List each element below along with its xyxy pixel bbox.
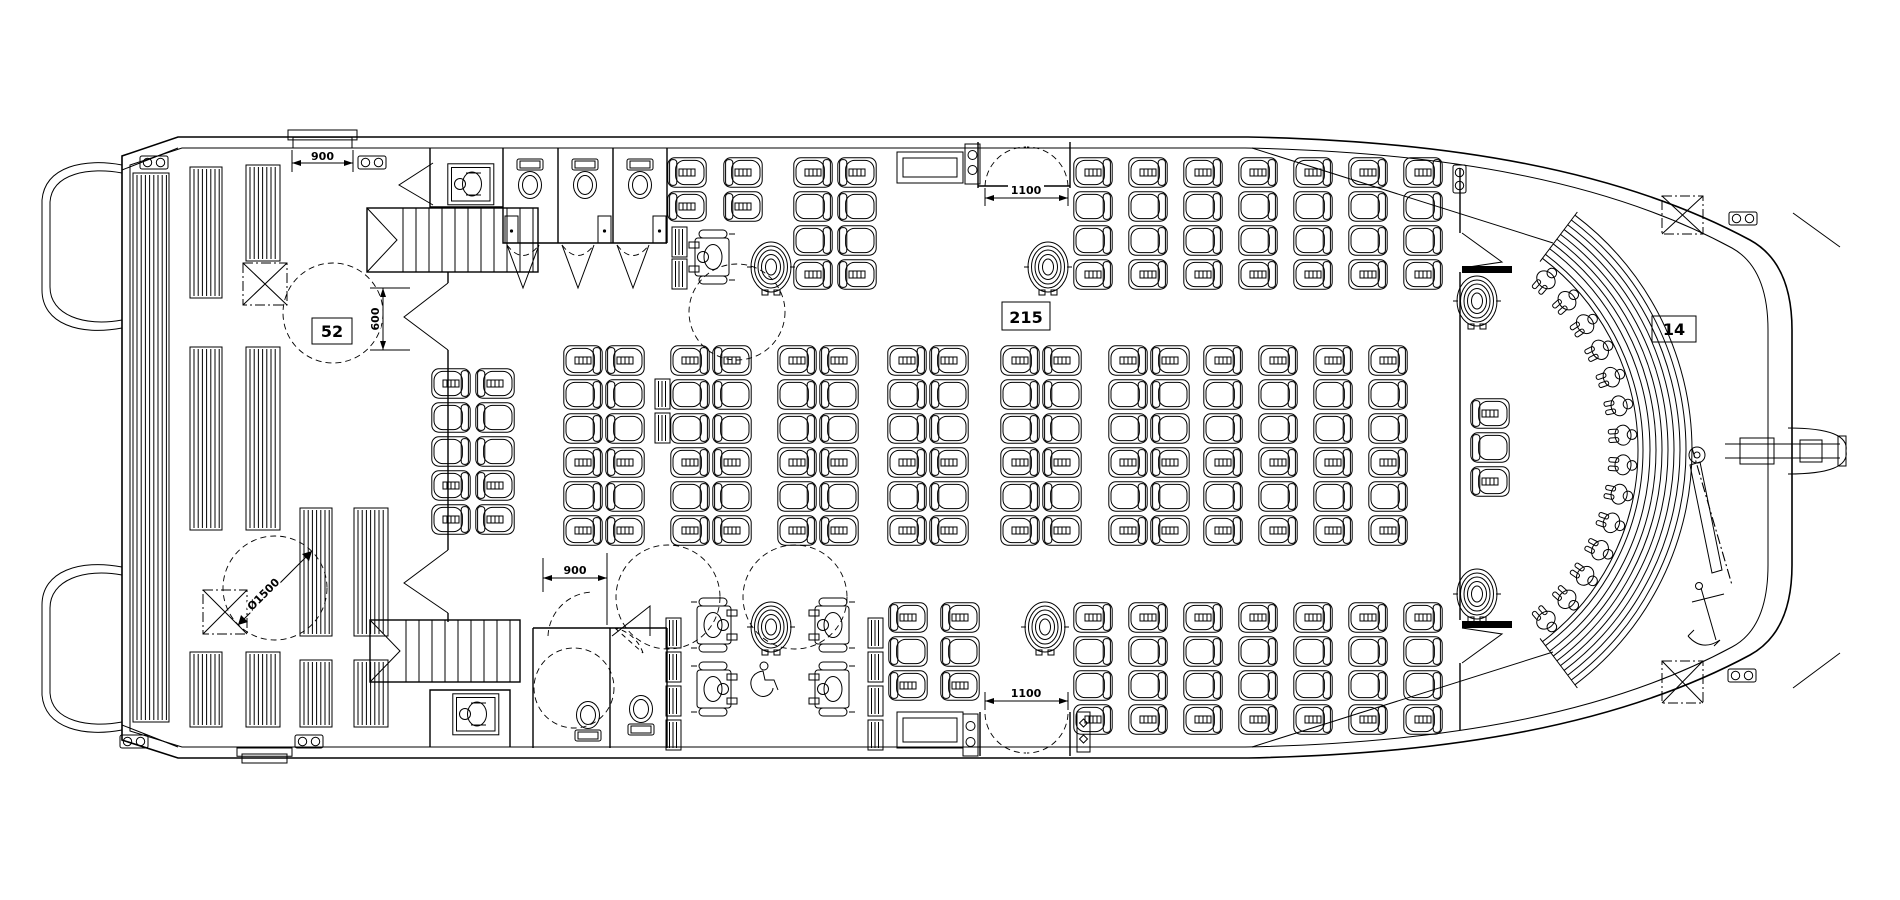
seat	[432, 437, 470, 466]
seat	[941, 637, 979, 666]
seat-ticks	[1085, 169, 1101, 176]
baby-change-table-icon	[448, 164, 494, 205]
seat-ticks	[1250, 271, 1266, 278]
seat-ticks	[443, 482, 459, 489]
turning-circle	[283, 263, 383, 363]
bow-door-bottom	[1462, 628, 1502, 663]
seat-ticks	[575, 459, 591, 466]
seat-ticks	[1195, 614, 1211, 621]
seat-ticks	[805, 271, 821, 278]
life-ring-icon	[1021, 602, 1069, 655]
wheelchair-user-icon	[691, 662, 737, 716]
seat	[838, 226, 876, 255]
seat	[1349, 192, 1387, 221]
aft-cabin-door-lower	[404, 550, 448, 613]
seat	[1404, 226, 1442, 255]
seat	[564, 482, 602, 511]
seat	[1151, 482, 1189, 511]
toilet-stall-door-swing-2	[562, 245, 594, 288]
seat-ticks	[849, 169, 865, 176]
seat-ticks	[1415, 169, 1431, 176]
seat	[713, 380, 751, 409]
equipment-box-bottom-inner	[903, 718, 957, 742]
seat-ticks	[941, 357, 957, 364]
seat-ticks	[849, 271, 865, 278]
seat	[1001, 414, 1039, 443]
seat	[820, 414, 858, 443]
seat	[1404, 671, 1442, 700]
seat	[1001, 482, 1039, 511]
dim-text: 600	[369, 307, 382, 330]
seat-ticks	[1415, 271, 1431, 278]
seat	[1074, 226, 1112, 255]
seat-ticks	[789, 527, 805, 534]
seat	[888, 482, 926, 511]
seat-group-upper-starboard-block	[1074, 158, 1442, 289]
seat-ticks	[724, 357, 740, 364]
seat-ticks	[1120, 527, 1136, 534]
seat	[1184, 637, 1222, 666]
seat-ticks	[1305, 716, 1321, 723]
seat	[1314, 482, 1352, 511]
seat-group-bow-deck-col	[1471, 399, 1509, 496]
seat-ticks	[724, 527, 740, 534]
seat	[794, 192, 832, 221]
label-bow-deck-capacity: 14	[1652, 316, 1696, 342]
svg-text:14: 14	[1663, 320, 1685, 339]
seat	[1259, 380, 1297, 409]
seat-ticks	[1360, 614, 1376, 621]
lower-vestibule-walls	[980, 712, 1070, 756]
dim-diameter-1500: Ø1500	[238, 551, 312, 625]
seat-ticks	[1054, 527, 1070, 534]
tip-up-seat	[666, 618, 681, 648]
seat-ticks	[1305, 614, 1321, 621]
seat-ticks	[1215, 527, 1231, 534]
seat-ticks	[1325, 357, 1341, 364]
equipment-box-top-inner	[903, 158, 957, 177]
equipment-box-bottom	[897, 712, 963, 748]
seat	[930, 482, 968, 511]
svg-text:215: 215	[1009, 308, 1042, 327]
seat	[1239, 637, 1277, 666]
seat-ticks	[1140, 614, 1156, 621]
seat-ticks	[1305, 271, 1321, 278]
seat-ticks	[1012, 357, 1028, 364]
seat-ticks	[941, 459, 957, 466]
seat	[1294, 192, 1332, 221]
boarding-gate	[237, 748, 292, 763]
seat	[1294, 671, 1332, 700]
seat-ticks	[900, 682, 916, 689]
bow-amphitheater	[1529, 212, 1692, 688]
seated-passenger-figure	[1529, 603, 1563, 637]
seat-ticks	[1215, 459, 1231, 466]
tip-up-seat	[666, 686, 681, 716]
seat-ticks	[1140, 271, 1156, 278]
label-aft-deck-capacity: 52	[312, 318, 352, 344]
seat-ticks	[831, 527, 847, 534]
seat-ticks	[617, 459, 633, 466]
seat-ticks	[789, 459, 805, 466]
seat	[1109, 380, 1147, 409]
deck-hatch-icon	[1662, 661, 1703, 703]
mooring-cleat-icon	[358, 156, 386, 169]
seat-ticks	[789, 357, 805, 364]
mast-laid-down	[1689, 447, 1732, 585]
seated-passenger-figure	[1608, 424, 1638, 446]
seat	[713, 414, 751, 443]
seat	[1239, 192, 1277, 221]
seat-ticks	[941, 527, 957, 534]
seat-group-upper-port-singles	[668, 158, 762, 221]
seat-ticks	[1012, 459, 1028, 466]
life-ring-icon	[1024, 242, 1072, 295]
dim-text: 900	[564, 564, 587, 577]
seat-ticks	[899, 527, 915, 534]
seat	[930, 414, 968, 443]
seat	[432, 403, 470, 432]
seat	[606, 414, 644, 443]
dim-900-top: 900	[292, 150, 353, 172]
seat-group-centre-pair-6	[1109, 346, 1189, 545]
seat-ticks	[1120, 459, 1136, 466]
seat	[671, 414, 709, 443]
tip-up-seat	[868, 618, 883, 648]
seat	[1074, 671, 1112, 700]
stern-sponson-top	[42, 163, 122, 331]
seat	[1184, 671, 1222, 700]
seat	[606, 380, 644, 409]
seat-ticks	[487, 482, 503, 489]
seat-ticks	[443, 380, 459, 387]
seat-ticks	[1140, 169, 1156, 176]
ferry-deck-plan-drawing: 900 600 Ø1500 900 1100 1100	[0, 0, 1900, 900]
seat	[820, 482, 858, 511]
seat-group-lower-starboard-block	[1129, 603, 1442, 734]
bench	[354, 508, 388, 636]
seat	[1001, 380, 1039, 409]
bench	[246, 165, 280, 261]
toilet-icon	[572, 159, 598, 199]
anchor-icon	[1688, 583, 1724, 647]
seat	[1314, 414, 1352, 443]
seat-group-centre-pair-5	[1001, 346, 1081, 545]
seated-passenger-figure	[1568, 308, 1603, 340]
tip-up-seat	[868, 686, 883, 716]
seat	[1129, 192, 1167, 221]
deck-plan-page: 900 600 Ø1500 900 1100 1100	[0, 0, 1900, 900]
seat-group-upper-port-pairs	[794, 158, 876, 289]
seat	[671, 482, 709, 511]
toilet-icon	[575, 702, 601, 742]
seat	[1074, 192, 1112, 221]
mooring-cleat-icon	[1729, 212, 1757, 225]
seat	[1184, 192, 1222, 221]
seated-passenger-figure	[1568, 559, 1603, 591]
stern-sponson-bottom	[42, 565, 122, 733]
seat	[1259, 482, 1297, 511]
equipment-box-top	[897, 152, 963, 183]
stairs	[370, 620, 520, 682]
bench	[190, 652, 222, 727]
seat	[564, 380, 602, 409]
seat-ticks	[1054, 459, 1070, 466]
seat-ticks	[735, 203, 751, 210]
seat-ticks	[1305, 169, 1321, 176]
seat	[564, 414, 602, 443]
bench	[190, 347, 222, 530]
mooring-cleat-icon	[295, 735, 323, 748]
seat	[1369, 380, 1407, 409]
seat	[713, 482, 751, 511]
seated-passenger-figure	[1529, 263, 1563, 297]
tip-up-seat	[868, 720, 883, 750]
seat-group-centre-pair-2	[671, 346, 751, 545]
dim-1100-bottom: 1100	[985, 687, 1068, 710]
baby-change-table-icon	[453, 694, 499, 735]
seat	[1109, 482, 1147, 511]
seat	[888, 380, 926, 409]
seat-ticks	[1195, 716, 1211, 723]
seat-ticks	[1120, 357, 1136, 364]
seat-group-centre-pair-4	[888, 346, 968, 545]
seat-ticks	[1054, 357, 1070, 364]
seat	[1349, 637, 1387, 666]
seat	[606, 482, 644, 511]
bench	[133, 173, 169, 722]
seat	[838, 192, 876, 221]
seat-ticks	[1325, 459, 1341, 466]
tip-up-seat	[868, 652, 883, 682]
turning-circle	[534, 648, 614, 728]
seat	[1184, 226, 1222, 255]
seat-ticks	[682, 527, 698, 534]
seat-ticks	[805, 169, 821, 176]
seated-passenger-figure	[1594, 509, 1627, 537]
seated-passenger-figure	[1550, 284, 1584, 318]
seat-ticks	[1215, 357, 1231, 364]
bench	[246, 652, 280, 727]
toilet-stall-door-swing-1	[507, 245, 539, 288]
seat-ticks	[682, 459, 698, 466]
seat	[1043, 482, 1081, 511]
deck-lobby-door	[399, 163, 433, 205]
seat-ticks	[1085, 716, 1101, 723]
seat-ticks	[831, 459, 847, 466]
dim-text: 900	[311, 150, 334, 163]
seat	[1239, 226, 1277, 255]
seat-ticks	[575, 357, 591, 364]
seat-ticks	[1380, 357, 1396, 364]
lower-lobby-door-swing	[548, 592, 592, 636]
seat	[1259, 414, 1297, 443]
seat-ticks	[617, 527, 633, 534]
seat-ticks	[679, 203, 695, 210]
wheelchair-user-icon	[809, 598, 855, 652]
seat	[1294, 226, 1332, 255]
tip-up-seat	[655, 379, 670, 409]
upper-entrance-door-swings	[985, 147, 1068, 186]
seat	[1404, 637, 1442, 666]
seat-ticks	[1360, 169, 1376, 176]
bench	[246, 347, 280, 530]
seat-ticks	[1085, 271, 1101, 278]
seat-ticks	[1415, 614, 1431, 621]
deck-hatch-icon	[243, 263, 287, 305]
toilet-icon	[627, 159, 653, 199]
mooring-cleat-icon	[1728, 669, 1756, 682]
seat	[1471, 433, 1509, 462]
seat-ticks	[1162, 357, 1178, 364]
tip-up-seat	[672, 259, 687, 289]
seat	[888, 414, 926, 443]
toilet-stall-door-swing-3	[617, 245, 649, 288]
seat	[1074, 637, 1112, 666]
seat-ticks	[1140, 716, 1156, 723]
seat	[930, 380, 968, 409]
seat-group-lower-mid-col	[1074, 603, 1112, 734]
seat-ticks	[1250, 614, 1266, 621]
seat-ticks	[1380, 527, 1396, 534]
seat	[476, 403, 514, 432]
seat-group-centre-aft-pair	[432, 369, 514, 534]
seat	[1349, 226, 1387, 255]
bow-canopy-edge	[1252, 148, 1553, 747]
stairs	[367, 208, 538, 272]
seat	[1129, 637, 1167, 666]
door-control-kiosk-bottom	[963, 714, 978, 756]
seat-ticks	[831, 357, 847, 364]
seat-group-lower-port-block	[889, 603, 979, 700]
seat-group-centre-singles	[1204, 346, 1407, 545]
seat-ticks	[487, 380, 503, 387]
seat	[476, 437, 514, 466]
dim-text: 1100	[1011, 184, 1042, 197]
seat-ticks	[679, 169, 695, 176]
seat	[1369, 482, 1407, 511]
turning-circle	[616, 545, 720, 649]
tip-up-seat	[666, 720, 681, 750]
seated-passenger-figure	[1603, 393, 1635, 418]
toilet-block-walls	[430, 148, 667, 243]
seat-group-centre-pair-3	[778, 346, 858, 545]
boarding-gate	[288, 130, 357, 148]
seat	[889, 637, 927, 666]
lower-lobby-door-leaf	[612, 606, 650, 636]
bow-door-top	[1462, 233, 1502, 268]
seat-ticks	[487, 516, 503, 523]
anchor-windlass	[1688, 428, 1846, 646]
seat	[794, 226, 832, 255]
seat	[778, 482, 816, 511]
dim-900-bottom: 900	[543, 553, 607, 625]
seat-group-centre-pair-1	[564, 346, 644, 545]
seat	[671, 380, 709, 409]
seat-ticks	[1162, 527, 1178, 534]
seat	[1204, 380, 1242, 409]
seated-passenger-figure	[1603, 482, 1635, 507]
tip-up-seat	[672, 227, 687, 257]
seat-ticks	[1380, 459, 1396, 466]
seat-ticks	[1195, 271, 1211, 278]
seat-ticks	[1162, 459, 1178, 466]
seat	[820, 380, 858, 409]
seat-ticks	[1482, 478, 1498, 485]
seat	[1314, 380, 1352, 409]
seat	[1369, 414, 1407, 443]
seat-ticks	[682, 357, 698, 364]
dim-text: Ø1500	[245, 576, 283, 614]
seat	[778, 380, 816, 409]
tip-up-seat	[666, 652, 681, 682]
seat-ticks	[1325, 527, 1341, 534]
seat-ticks	[1482, 410, 1498, 417]
seat-ticks	[1012, 527, 1028, 534]
seat	[778, 414, 816, 443]
seat-ticks	[735, 169, 751, 176]
seat-ticks	[575, 527, 591, 534]
seat	[1204, 414, 1242, 443]
seat	[1151, 414, 1189, 443]
seat-ticks	[1270, 527, 1286, 534]
seat	[1129, 226, 1167, 255]
dim-600-vertical: 600	[369, 288, 410, 350]
bench	[190, 167, 222, 298]
seat-ticks	[899, 459, 915, 466]
dim-text: 1100	[1011, 687, 1042, 700]
aft-cabin-door-upper	[404, 283, 448, 350]
wheelchair-access-icon	[751, 662, 778, 696]
seat-ticks	[617, 357, 633, 364]
seat-ticks	[724, 459, 740, 466]
label-main-cabin-capacity: 215	[1002, 302, 1050, 330]
seat	[1349, 671, 1387, 700]
wheelchair-user-icon	[691, 598, 737, 652]
seat	[1294, 637, 1332, 666]
seated-passenger-figure	[1550, 582, 1584, 616]
toilet-icon	[628, 696, 654, 736]
seated-passenger-figure	[1608, 454, 1638, 476]
seat-ticks	[952, 682, 968, 689]
bench	[354, 660, 388, 727]
seat	[1204, 482, 1242, 511]
seat	[1109, 414, 1147, 443]
seat-ticks	[1415, 716, 1431, 723]
seat-ticks	[1195, 169, 1211, 176]
seat-ticks	[900, 614, 916, 621]
wheelchair-user-icon	[689, 230, 735, 284]
svg-text:52: 52	[321, 322, 343, 341]
seat-ticks	[1085, 614, 1101, 621]
life-ring-icon	[747, 242, 795, 295]
toilet-icon	[517, 159, 543, 199]
bench	[300, 508, 332, 636]
seat-ticks	[1360, 271, 1376, 278]
seat-ticks	[899, 357, 915, 364]
dim-1100-top: 1100	[985, 184, 1068, 206]
life-ring-icon	[747, 602, 795, 655]
seat	[1151, 380, 1189, 409]
seated-passenger-figure	[1583, 535, 1617, 565]
tip-up-seat	[655, 413, 670, 443]
deck-hatch-icon	[203, 590, 247, 634]
seat-ticks	[952, 614, 968, 621]
seat-ticks	[1360, 716, 1376, 723]
seated-passenger-figure	[1594, 363, 1627, 391]
seat	[1129, 671, 1167, 700]
seat-ticks	[1270, 459, 1286, 466]
